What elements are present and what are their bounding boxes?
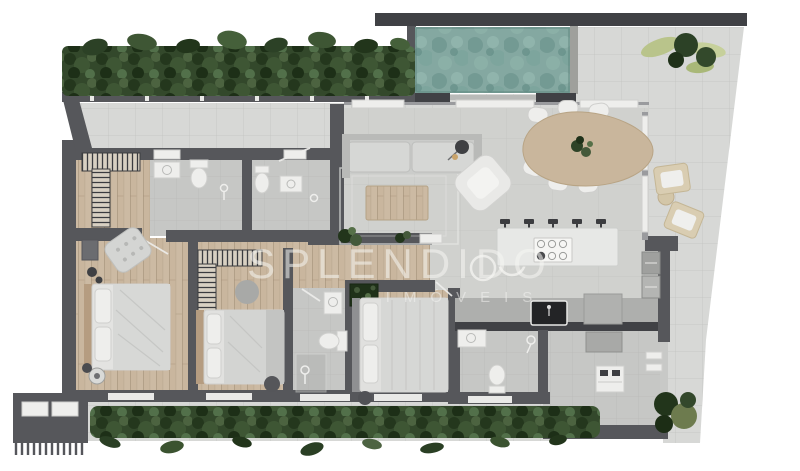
top-planter [62,46,415,96]
vanity-sink [458,330,486,347]
balcony-wall [13,393,88,443]
balcony-railing [16,443,82,455]
wall-speaker [96,277,103,284]
shelf [646,352,662,359]
toilet [319,333,339,349]
window [154,150,180,159]
sliding-door [352,100,404,108]
pool-wall-right [570,24,578,94]
bed-3 [352,298,448,392]
floor-plan-page: SPLENDIDO IMÓVEIS [0,0,800,471]
swimming-pool [415,27,570,93]
master-closet-rail [92,169,110,227]
refrigerator [584,294,622,324]
washer [596,366,624,392]
sliding-door [456,100,534,108]
coffee-table [366,186,428,220]
stool [358,391,372,405]
toilet [191,168,207,188]
balcony-bench [22,402,48,416]
roof-canopy [375,13,747,26]
balcony-bottom-left [13,393,88,455]
cabinet [586,332,622,352]
bed-2 [196,310,284,384]
vanity-sink [324,292,342,314]
stool [264,376,280,392]
wall-art [82,240,98,260]
glass-panel [642,176,648,232]
toilet [255,173,269,193]
wall-speaker [87,267,97,277]
toilet [489,365,505,385]
shelf [646,364,662,371]
watermark-subtitle: IMÓVEIS [386,289,547,306]
vanity-sink [154,162,180,178]
balcony-bench [52,402,78,416]
vanity-sink [280,176,302,192]
pool-door-track [450,95,536,100]
master-closet-rail [82,153,140,171]
lounge-chair [653,163,691,195]
master-bed [84,284,170,370]
watermark-title: SPLENDIDO [247,240,553,287]
floor-plan-svg: SPLENDIDO IMÓVEIS [0,0,800,471]
sliding-door [580,100,638,108]
bottom-planter [90,406,600,438]
shower-area [296,354,326,392]
